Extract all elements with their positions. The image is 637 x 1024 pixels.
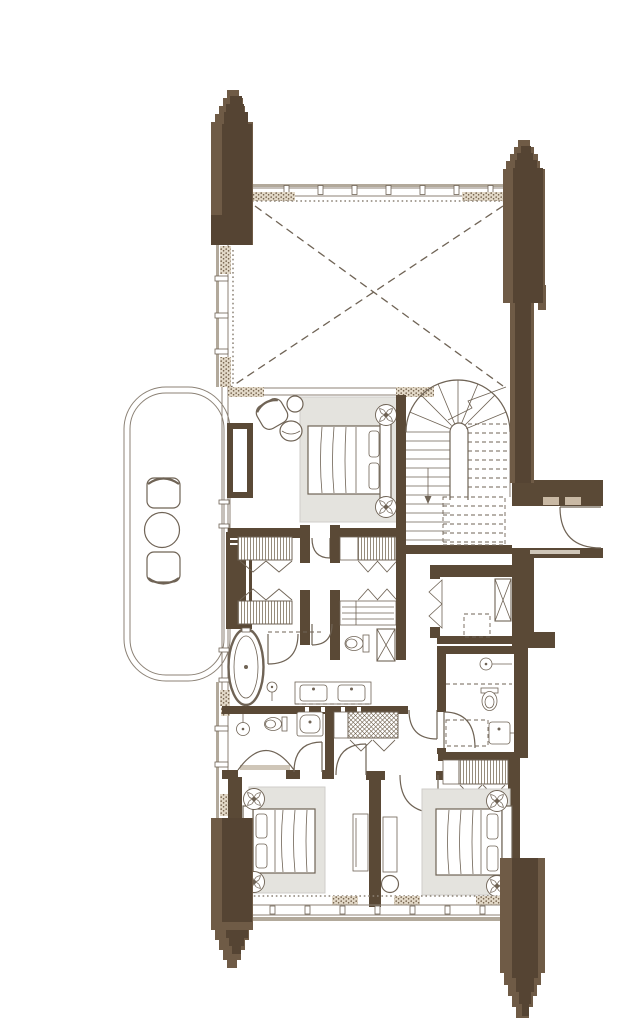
floor-plan — [0, 0, 637, 1024]
lounge-chair — [147, 478, 180, 508]
luggage-rack — [348, 712, 398, 738]
double-vanity — [295, 682, 371, 704]
curtain-wall-top — [253, 184, 503, 187]
ottoman — [280, 421, 302, 441]
toilet — [345, 635, 369, 652]
side-table — [287, 396, 303, 412]
headboard — [380, 422, 391, 498]
chair — [382, 876, 399, 893]
toilet — [481, 688, 498, 711]
round-table — [145, 513, 180, 548]
pillow — [369, 431, 379, 457]
toilet — [265, 717, 288, 731]
pillow — [256, 844, 267, 868]
hanging-wardrobe — [358, 537, 396, 560]
pillow — [256, 814, 267, 838]
pillow — [369, 463, 379, 489]
hanging-wardrobe — [459, 760, 508, 784]
desk — [353, 814, 368, 871]
double-bed — [243, 806, 315, 876]
double-bed — [308, 422, 391, 498]
pillow — [487, 814, 498, 839]
pillow — [487, 846, 498, 871]
hanging-wardrobe — [238, 537, 292, 560]
lounge-chair — [147, 552, 180, 584]
freestanding-bathtub — [229, 628, 264, 705]
service-shaft — [377, 629, 395, 661]
vanity-sink — [297, 712, 323, 736]
service-shaft — [495, 579, 511, 621]
desk — [382, 817, 399, 893]
tv-console — [227, 423, 253, 498]
hanging-wardrobe — [238, 601, 292, 624]
